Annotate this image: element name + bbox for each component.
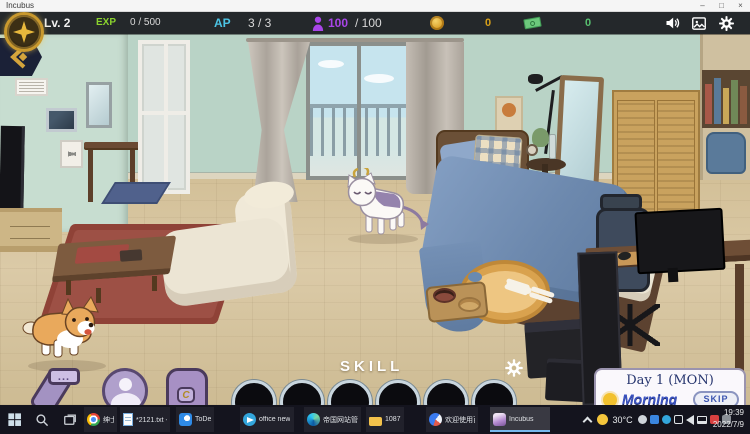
- search-button[interactable]: [30, 405, 54, 434]
- windows-logo-icon: [7, 412, 22, 427]
- taskbar-item-label: office new: [259, 416, 290, 423]
- wall-frame-art: [60, 140, 83, 168]
- notepad-icon: [123, 413, 133, 426]
- tray-display-icon[interactable]: [697, 416, 707, 424]
- cash-icon: [523, 17, 541, 30]
- food-bowl: [433, 288, 456, 303]
- bottle: [549, 134, 556, 159]
- time-of-day: Morning: [622, 391, 677, 405]
- white-door: [138, 40, 190, 194]
- skill-slot[interactable]: [424, 380, 468, 405]
- game-viewport: Lv. 2 EXP 0 / 500 AP 3 / 3 100 / 100 0 0: [0, 12, 750, 405]
- sound-icon[interactable]: [664, 15, 681, 31]
- table-box: [120, 249, 143, 262]
- chrome-icon: [87, 413, 100, 426]
- table-leg: [66, 280, 71, 295]
- cloud: [318, 60, 344, 68]
- taskbar-item-office-new[interactable]: office new: [240, 407, 294, 432]
- cash-value: 0: [585, 12, 591, 34]
- skill-slot[interactable]: [280, 380, 324, 405]
- telegram-icon: [243, 413, 256, 426]
- spirit-current: 100: [328, 12, 348, 34]
- sun-icon: [603, 393, 617, 405]
- taskbar-item-label: 帝国网站管理系统...: [323, 415, 358, 425]
- folder-icon: [369, 417, 382, 426]
- taskbar-clock[interactable]: 19:39 2022/7/9: [711, 407, 747, 431]
- task-view-button[interactable]: [58, 405, 82, 434]
- ap-value: 3 / 3: [248, 12, 271, 34]
- screen: Incubus – □ ×: [0, 0, 750, 434]
- search-icon: [35, 413, 49, 427]
- skill-slot[interactable]: [328, 380, 372, 405]
- taskbar-item-label: 欢迎使用百度网盘: [445, 415, 475, 425]
- taskbar-item-notepad[interactable]: *2121.txt - 记事本: [120, 407, 170, 432]
- tray-temperature[interactable]: 30°C: [613, 415, 633, 425]
- spirit-person-icon: [312, 16, 324, 31]
- taskbar-item-label: 1087: [385, 416, 401, 423]
- tv-stand: [0, 208, 62, 252]
- start-button[interactable]: [2, 405, 26, 434]
- wall-art: [495, 96, 523, 133]
- skill-settings-gear-icon[interactable]: [504, 358, 524, 378]
- system-tray: 30°C: [582, 405, 732, 434]
- balcony-window: [306, 42, 410, 180]
- baidu-netdisk-icon: [429, 413, 442, 426]
- tray-chevron-icon[interactable]: [582, 417, 592, 427]
- inventory-backpack-button[interactable]: C: [166, 368, 208, 405]
- desk-lamp-head: [528, 74, 543, 84]
- level-label: Lv. 2: [44, 12, 70, 34]
- bookshelf: [702, 70, 750, 128]
- tray-icon[interactable]: [662, 415, 671, 424]
- taskbar-item-label: Incubus: [509, 416, 534, 423]
- taskbar-item-folder[interactable]: 1087: [366, 407, 404, 432]
- gallery-icon[interactable]: [690, 16, 708, 31]
- coin-icon: [430, 16, 444, 30]
- task-view-icon: [63, 413, 77, 427]
- tray-icon[interactable]: [674, 415, 683, 424]
- desk-leg: [735, 264, 744, 376]
- taskbar-item-edge[interactable]: 帝国网站管理系统...: [304, 407, 361, 432]
- settings-gear-icon[interactable]: [718, 15, 735, 32]
- incubus-cat-pet[interactable]: [336, 168, 432, 246]
- tray-icon[interactable]: [650, 415, 659, 424]
- close-button[interactable]: ×: [731, 0, 750, 12]
- hud-bar: Lv. 2 EXP 0 / 500 AP 3 / 3 100 / 100 0 0: [0, 12, 750, 34]
- table-leg: [152, 276, 157, 291]
- wall-frame-text: [15, 78, 48, 96]
- exp-value: 0 / 500: [130, 12, 161, 34]
- clock-date: 2022/7/9: [711, 419, 744, 431]
- skip-button[interactable]: SKIP: [693, 391, 739, 405]
- taskbar-item-baidu-netdisk[interactable]: 欢迎使用百度网盘: [426, 407, 478, 432]
- console-table: [84, 142, 140, 148]
- alarm-clock: [526, 144, 538, 156]
- backpack-emblem: C: [177, 387, 195, 403]
- day-title: Day 1 (MON): [596, 373, 744, 388]
- maximize-button[interactable]: □: [712, 0, 731, 12]
- blue-bag: [706, 132, 746, 174]
- skill-slot[interactable]: [232, 380, 276, 405]
- tray-icon[interactable]: [638, 415, 647, 424]
- spirit-max: / 100: [355, 12, 382, 34]
- exp-label: EXP: [96, 12, 116, 34]
- cloud: [364, 74, 394, 83]
- monitor: [634, 208, 725, 275]
- console-table-leg: [88, 150, 93, 202]
- skill-slot-row: [232, 380, 524, 405]
- tray-weather-icon[interactable]: [597, 414, 608, 425]
- skill-bar-title: SKILL: [340, 358, 403, 375]
- taskbar-item-chrome[interactable]: 绅士游戏合集-绅士...: [84, 407, 117, 432]
- clock-time: 19:39: [711, 407, 744, 419]
- minimize-button[interactable]: –: [693, 0, 712, 12]
- windows-taskbar: 绅士游戏合集-绅士... *2121.txt - 记事本 ToDesk offi…: [0, 405, 750, 434]
- gold-value: 0: [485, 12, 491, 34]
- window-title: Incubus: [6, 0, 34, 12]
- taskbar-item-label: *2121.txt - 记事本: [136, 415, 167, 425]
- window-mullion: [357, 46, 361, 176]
- corgi-dog[interactable]: [18, 294, 110, 370]
- skill-slot[interactable]: [376, 380, 420, 405]
- skill-slot[interactable]: [472, 380, 516, 405]
- chat-bubble-icon: ...: [48, 368, 80, 385]
- taskbar-item-label: 绅士游戏合集-绅士...: [103, 415, 114, 425]
- water-bowl: [458, 297, 481, 312]
- window-controls: – □ ×: [693, 0, 750, 12]
- monitor-stand: [668, 268, 679, 283]
- window-titlebar: Incubus – □ ×: [0, 0, 750, 12]
- taskbar-item-todesk[interactable]: ToDesk: [176, 407, 214, 432]
- phone-button[interactable]: ...: [32, 366, 82, 405]
- game-logo: [4, 12, 44, 52]
- taskbar-item-label: ToDesk: [195, 416, 211, 423]
- wall-mirror: [86, 82, 112, 128]
- edge-icon: [307, 413, 320, 426]
- taskbar-item-incubus[interactable]: Incubus: [490, 407, 550, 432]
- todesk-icon: [179, 413, 192, 426]
- ap-label: AP: [214, 12, 231, 34]
- tray-speaker-icon[interactable]: [686, 415, 694, 425]
- incubus-icon: [493, 413, 506, 426]
- wall-frame-photo: [46, 108, 77, 132]
- day-panel: Day 1 (MON) Morning SKIP: [594, 368, 746, 405]
